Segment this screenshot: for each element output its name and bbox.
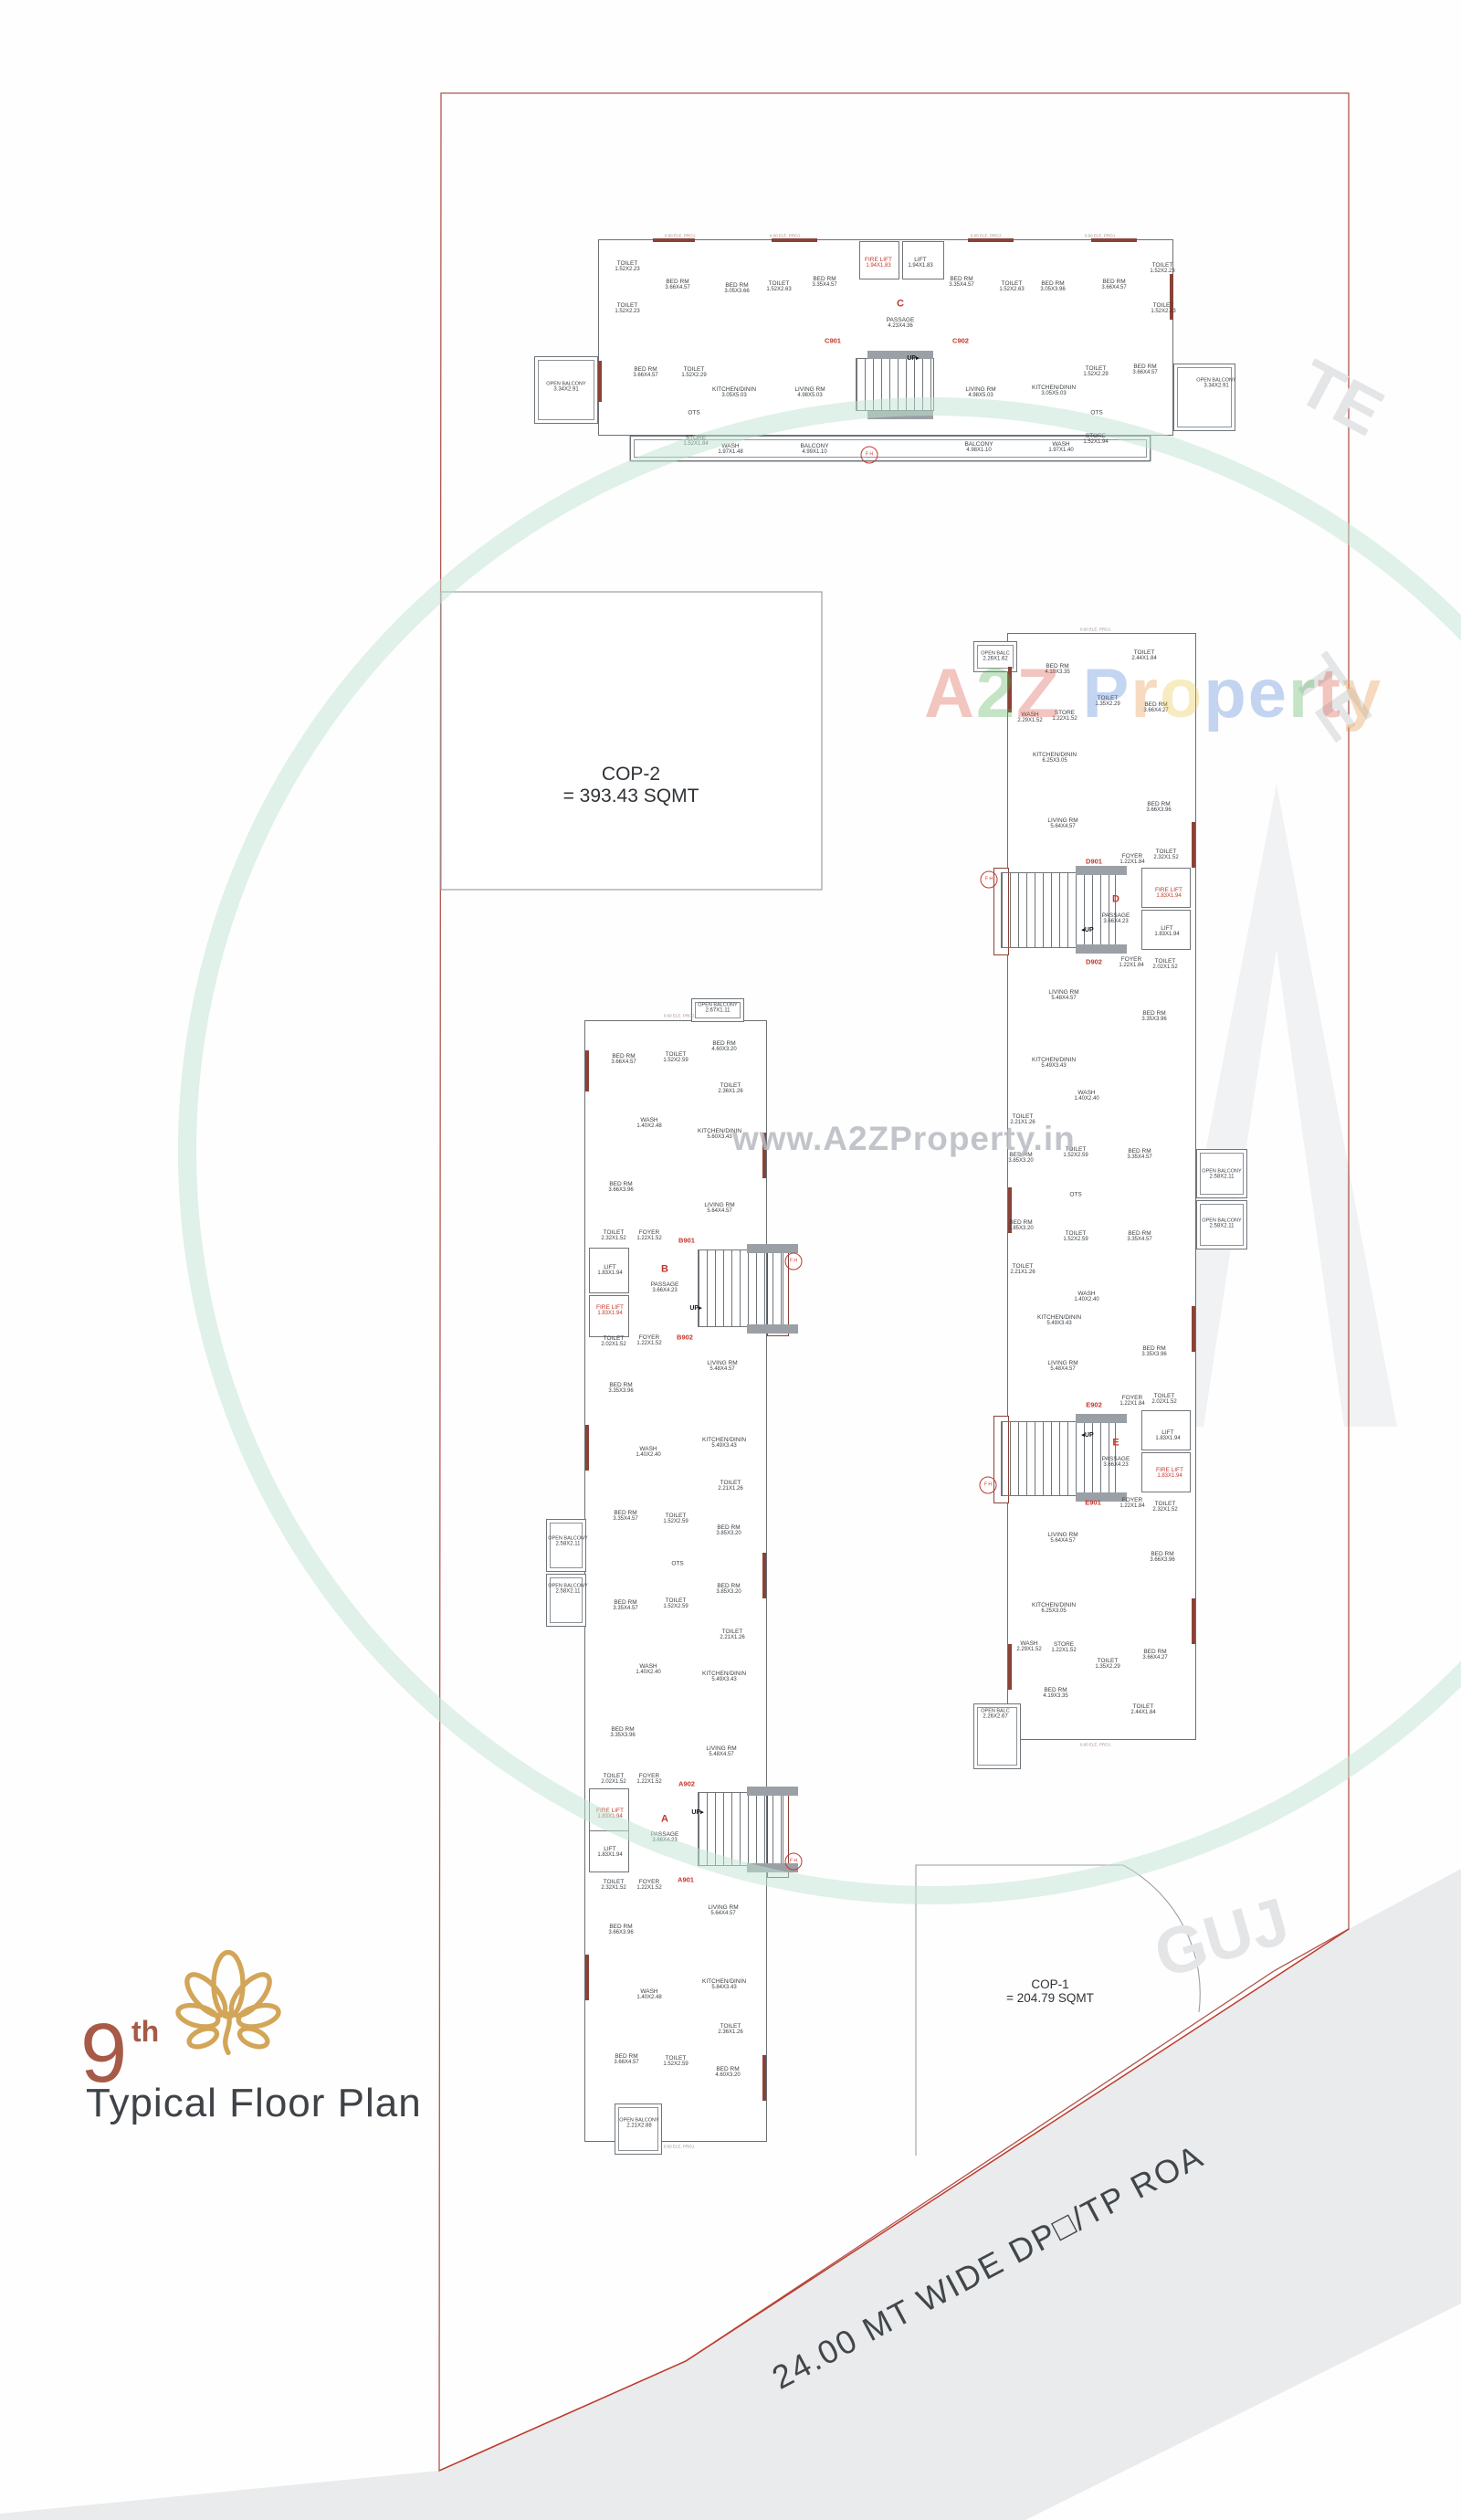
room-label: BED RM4.19X3.35 <box>1043 1687 1067 1700</box>
room-label: BED RM3.66X3.96 <box>1150 1551 1174 1564</box>
room-label: WASH2.29X1.52 <box>1017 712 1042 724</box>
wall-accent <box>1192 1598 1195 1644</box>
room-label: BED RM3.35X4.57 <box>613 1599 637 1612</box>
room-label: WASH1.40X2.40 <box>636 1663 660 1676</box>
room-label: TOILET2.21X1.26 <box>1010 1263 1035 1276</box>
room-label: BED RM4.60X3.20 <box>711 1040 736 1053</box>
room-label: OPEN BALCONY2.58X2.11 <box>548 1535 587 1547</box>
room-label: BED RM3.85X3.20 <box>1008 1152 1033 1165</box>
room-label: BED RM3.66X3.96 <box>1146 801 1171 814</box>
room-label: FOYER1.22X1.52 <box>636 1879 661 1892</box>
room-label: TOILET2.02X1.52 <box>1151 1393 1176 1406</box>
unit-label: C901 <box>825 338 841 346</box>
room-label: OPEN BALC2.26X2.67 <box>981 1708 1009 1720</box>
staircase <box>856 358 934 411</box>
room-label: KITCHEN/DININ6.25X3.05 <box>1033 752 1077 764</box>
room-label: FIRE LIFT1.94X1.83 <box>865 257 892 269</box>
up-arrow-label: ◂UP <box>1081 927 1093 934</box>
room-label: BED RM3.66X4.57 <box>611 1053 636 1066</box>
room-label: TOILET1.52X2.63 <box>766 280 791 293</box>
room-label: KITCHEN/DININ3.05X5.03 <box>1032 385 1076 397</box>
room-label: BED RM3.66X4.57 <box>665 279 689 291</box>
room-label: KITCHEN/DININ6.25X3.05 <box>1032 1602 1076 1615</box>
room-label: BED RM3.35X3.96 <box>610 1726 635 1739</box>
room-label: FOYER1.22X1.84 <box>1119 1395 1144 1408</box>
stair-landing <box>747 1244 798 1253</box>
room-label: BED RM3.35X3.96 <box>1141 1345 1166 1358</box>
room-label: KITCHEN/DININ5.49X3.43 <box>702 1437 746 1450</box>
wall-accent <box>762 2055 766 2101</box>
right-tower-outline <box>1007 633 1196 1740</box>
room-label: KITCHEN/DININ5.84X3.43 <box>702 1978 746 1991</box>
room-label: BED RM3.66X4.27 <box>1143 701 1168 714</box>
room-label: TOILET2.32X1.52 <box>601 1229 625 1242</box>
unit-label: E901 <box>1085 1500 1101 1508</box>
room-label: BED RM3.66X4.57 <box>1132 364 1157 376</box>
unit-label: A901 <box>678 1877 694 1885</box>
core-letter: E <box>1112 1438 1119 1450</box>
room-label: TOILET1.52X2.23 <box>1150 262 1174 275</box>
stair-landing <box>867 351 933 359</box>
room-label: PASSAGE3.66X4.23 <box>1102 912 1130 925</box>
room-label: FOYER1.22X1.84 <box>1119 853 1144 866</box>
room-label: FIRE LIFT1.83X1.94 <box>1156 1467 1183 1480</box>
wall-accent <box>772 238 817 242</box>
room-label: BALCONY4.98X1.10 <box>964 441 993 454</box>
room-label: LIVING RM5.64X4.57 <box>1047 1532 1077 1545</box>
room-label: LIFT1.83X1.94 <box>1154 925 1179 938</box>
room-label: OTS <box>1090 409 1102 416</box>
room-label: KITCHEN/DININ5.60X3.43 <box>698 1128 741 1141</box>
room-label: BED RM3.05X3.96 <box>1040 280 1065 293</box>
room-label: TOILET1.52X2.59 <box>1063 1146 1088 1159</box>
room-label: TOILET2.21X1.26 <box>1010 1113 1035 1126</box>
plan-title: Typical Floor Plan <box>86 2081 422 2126</box>
ele-proj-label: 0.60 ELE. PROJ. <box>1080 627 1111 632</box>
room-label: WASH1.97X1.48 <box>718 443 742 456</box>
room-label: STORE1.22X1.52 <box>1051 1641 1076 1654</box>
balcony <box>1173 364 1235 431</box>
wall-accent <box>585 1050 589 1091</box>
room-label: TOILET2.44X1.84 <box>1131 649 1156 662</box>
room-label: TOILET1.35X2.29 <box>1095 695 1119 708</box>
room-label: LIFT1.83X1.94 <box>597 1264 622 1277</box>
room-label: BED RM3.35X4.57 <box>812 276 836 289</box>
room-label: FOYER1.22X1.84 <box>1119 1497 1144 1510</box>
cop1-name: COP-1 <box>1006 1977 1094 1991</box>
stair-landing <box>747 1787 798 1796</box>
room-label: LIVING RM5.48X4.57 <box>706 1745 736 1758</box>
room-label: BED RM3.66X4.27 <box>1142 1649 1167 1661</box>
room-label: BED RM3.85X3.20 <box>716 1524 741 1537</box>
stair-landing <box>1076 1414 1127 1423</box>
room-label: BED RM3.66X4.57 <box>614 2053 638 2066</box>
wall-accent <box>1008 667 1012 712</box>
wall-accent <box>1008 1644 1012 1690</box>
cop2-area: = 393.43 SQMT <box>563 786 699 807</box>
unit-label: B902 <box>677 1334 693 1343</box>
room-label: LIVING RM5.64X4.57 <box>704 1202 734 1215</box>
stair-landing <box>1076 866 1127 875</box>
room-label: PASSAGE3.66X4.23 <box>651 1281 679 1294</box>
room-label: FOYER1.22X1.52 <box>636 1773 661 1786</box>
up-arrow-label: UP▸ <box>907 355 919 363</box>
room-label: FOYER1.22X1.52 <box>636 1229 661 1242</box>
room-label: FOYER1.22X1.84 <box>1119 956 1143 969</box>
unit-label: A902 <box>678 1781 695 1789</box>
room-label: OPEN BALCONY3.34X2.91 <box>546 381 585 393</box>
core-letter: C <box>897 299 904 311</box>
wall-accent <box>598 361 602 402</box>
room-label: TOILET2.32X1.52 <box>1153 849 1178 861</box>
up-arrow-label: UP▸ <box>691 1809 703 1817</box>
unit-label: B901 <box>678 1238 695 1246</box>
room-label: BED RM3.66X4.57 <box>1101 279 1126 291</box>
room-label: OTS <box>1069 1191 1081 1197</box>
wall-accent <box>968 238 1014 242</box>
room-label: TOILET1.52X2.23 <box>1151 302 1175 315</box>
room-label: BED RM3.66X3.96 <box>608 1181 633 1194</box>
fire-hydrant-badge: F H <box>981 871 998 889</box>
room-label: WASH1.40X2.40 <box>1074 1090 1098 1102</box>
room-label: KITCHEN/DININ5.49X3.43 <box>1032 1057 1076 1070</box>
room-label: BED RM3.66X4.57 <box>633 366 657 379</box>
ele-proj-label: 0.60 ELE. PROJ. <box>664 2145 695 2149</box>
title-block: 9 th Typical Floor Plan <box>64 1936 447 2146</box>
room-label: BED RM3.35X3.96 <box>1141 1010 1166 1023</box>
room-label: STORE1.52X1.84 <box>683 435 708 448</box>
room-label: TOILET1.52X2.23 <box>615 302 639 315</box>
room-label: BED RM3.35X4.57 <box>949 276 973 289</box>
staircase <box>698 1249 783 1327</box>
room-label: FIRE LIFT1.83X1.94 <box>596 1808 624 1820</box>
staircase <box>1001 1421 1116 1496</box>
room-label: LIVING RM5.64X4.57 <box>1047 817 1077 830</box>
room-label: LIFT1.94X1.83 <box>908 257 932 269</box>
room-label: STORE1.52X1.94 <box>1083 433 1108 446</box>
wall-accent <box>762 1133 766 1178</box>
room-label: LIFT1.83X1.94 <box>1155 1429 1180 1442</box>
stair-landing <box>1076 944 1127 954</box>
room-label: KITCHEN/DININ5.49X3.43 <box>1037 1314 1081 1327</box>
room-label: TOILET2.21X1.26 <box>718 1480 742 1492</box>
staircase <box>1001 872 1116 948</box>
cop2-parcel <box>441 592 822 890</box>
room-label: OPEN BALCONY3.34X2.91 <box>1196 377 1235 389</box>
ele-proj-label: 0.60 ELE. PROJ. <box>971 234 1002 238</box>
up-arrow-label: ◂UP <box>1081 1432 1093 1439</box>
room-label: KITCHEN/DININ5.49X3.43 <box>702 1671 746 1683</box>
fire-hydrant-badge: F H <box>785 1253 803 1271</box>
core-letter: D <box>1112 894 1119 906</box>
room-label: LIFT1.83X1.94 <box>597 1846 622 1859</box>
room-label: TOILET2.32X1.52 <box>601 1879 625 1892</box>
room-label: OPEN BALCONY2.58X2.11 <box>1202 1218 1241 1229</box>
floor-plan-canvas: COP-2 = 393.43 SQMT COP-1 = 204.79 SQMT … <box>0 0 1461 2520</box>
room-label: TOILET2.36X1.26 <box>718 1082 742 1095</box>
room-label: OPEN BALC2.26X1.62 <box>981 650 1009 662</box>
room-label: BED RM3.35X4.57 <box>1127 1148 1151 1161</box>
room-label: TOILET1.52X2.59 <box>1063 1230 1088 1243</box>
room-label: TOILET2.02X1.52 <box>601 1773 625 1786</box>
room-label: TOILET1.52X2.59 <box>663 1051 688 1064</box>
wall-accent <box>1192 1306 1195 1352</box>
room-label: LIVING RM5.48X4.57 <box>707 1360 737 1373</box>
cop2-label: COP-2 = 393.43 SQMT <box>563 764 699 807</box>
room-label: FOYER1.22X1.52 <box>636 1334 661 1347</box>
room-label: OPEN BALCONY2.21X2.88 <box>619 2117 658 2129</box>
room-label: WASH2.29X1.52 <box>1016 1640 1041 1653</box>
room-label: BED RM3.85X3.20 <box>716 1583 741 1596</box>
room-label: TOILET1.52X2.59 <box>663 2055 688 2068</box>
room-label: TOILET1.52X2.29 <box>1083 365 1108 378</box>
room-label: OPEN BALCONY2.58X2.11 <box>1202 1168 1241 1180</box>
room-label: TOILET2.21X1.26 <box>720 1629 744 1641</box>
room-label: TOILET1.52X2.63 <box>999 280 1024 293</box>
up-arrow-label: UP▸ <box>689 1305 701 1313</box>
room-label: LIVING RM4.98X5.03 <box>965 386 995 399</box>
ele-proj-label: 0.60 ELE. PROJ. <box>1085 234 1116 238</box>
fire-hydrant-badge: F H <box>980 1477 997 1494</box>
cop1-area: = 204.79 SQMT <box>1006 1991 1094 2005</box>
wall-accent <box>585 1955 589 2000</box>
room-label: TOILET1.52X2.29 <box>681 366 706 379</box>
room-label: WASH1.40X2.40 <box>636 1446 660 1459</box>
ele-proj-label: 0.60 ELE. PROJ. <box>1080 1743 1111 1747</box>
room-label: PASSAGE3.66X4.23 <box>1102 1456 1130 1469</box>
room-label: OTS <box>688 409 699 416</box>
wall-accent <box>762 1553 766 1598</box>
core-letter: B <box>661 1264 668 1276</box>
room-label: OPEN BALCONY2.67X1.11 <box>698 1002 737 1014</box>
room-label: LIVING RM4.98X5.03 <box>794 386 825 399</box>
wall-accent <box>585 1425 589 1471</box>
stair-landing <box>867 411 933 419</box>
room-label: STORE1.22X1.52 <box>1052 710 1077 722</box>
lotus-logo-icon <box>155 1944 301 2090</box>
room-label: OTS <box>671 1560 683 1566</box>
room-label: TOILET2.02X1.52 <box>601 1335 625 1348</box>
balcony <box>546 1574 586 1627</box>
cop2-name: COP-2 <box>563 764 699 786</box>
room-label: BED RM3.35X4.57 <box>613 1510 637 1523</box>
stair-landing <box>747 1324 798 1334</box>
room-label: BED RM3.85X3.20 <box>1008 1219 1033 1232</box>
room-label: WASH1.40X2.40 <box>1074 1291 1098 1303</box>
room-label: BED RM4.19X3.35 <box>1045 663 1069 676</box>
room-label: BALCONY4.99X1.10 <box>800 443 828 456</box>
unit-label: D901 <box>1086 859 1102 867</box>
room-label: WASH1.40X2.48 <box>636 1988 661 2001</box>
room-label: TOILET1.52X2.59 <box>663 1513 688 1525</box>
room-label: PASSAGE4.23X4.36 <box>887 317 915 330</box>
wall-accent <box>653 238 695 242</box>
room-label: BED RM3.05X3.66 <box>724 282 749 295</box>
cop1-label: COP-1 = 204.79 SQMT <box>1006 1977 1094 2005</box>
room-label: LIVING RM5.64X4.57 <box>708 1904 738 1917</box>
room-label: WASH1.97X1.40 <box>1048 441 1073 454</box>
room-label: TOILET1.52X2.59 <box>663 1597 688 1610</box>
room-label: OPEN BALCONY2.58X2.11 <box>548 1583 587 1595</box>
fire-hydrant-badge: F H <box>861 447 878 464</box>
room-label: TOILET1.52X2.23 <box>615 260 639 273</box>
ele-proj-label: 0.60 ELE. PROJ. <box>665 234 696 238</box>
room-label: FIRE LIFT1.83X1.94 <box>596 1304 624 1317</box>
room-label: KITCHEN/DININ3.05X5.03 <box>712 386 756 399</box>
room-label: FIRE LIFT1.83X1.94 <box>1155 887 1182 900</box>
room-label: BED RM3.35X4.57 <box>1127 1230 1151 1243</box>
room-label: TOILET2.44X1.84 <box>1130 1703 1155 1716</box>
ele-proj-label: 0.60 ELE. PROJ. <box>770 234 801 238</box>
ele-proj-label: 0.60 ELE. PROJ. <box>664 1014 695 1018</box>
room-label: PASSAGE3.66X4.23 <box>651 1831 679 1844</box>
room-label: WASH1.40X2.48 <box>636 1117 661 1130</box>
room-label: TOILET2.32X1.52 <box>1152 1501 1177 1513</box>
staircase <box>698 1792 783 1866</box>
room-label: BED RM3.66X3.96 <box>608 1924 633 1936</box>
room-label: BED RM4.60X3.20 <box>715 2066 740 2079</box>
core-letter: A <box>661 1814 668 1826</box>
room-label: LIVING RM5.48X4.57 <box>1048 989 1078 1002</box>
room-label: TOILET2.36X1.26 <box>718 2023 742 2036</box>
unit-label: C902 <box>952 338 969 346</box>
fire-hydrant-badge: F H <box>785 1853 803 1871</box>
room-label: BED RM3.35X3.96 <box>608 1382 633 1395</box>
wall-accent <box>1091 238 1137 242</box>
room-label: TOILET1.35X2.29 <box>1095 1658 1119 1671</box>
unit-label: E902 <box>1086 1402 1102 1410</box>
wall-accent <box>1192 822 1195 868</box>
room-label: LIVING RM5.48X4.57 <box>1047 1360 1077 1373</box>
room-label: TOILET2.02X1.52 <box>1152 958 1177 971</box>
unit-label: D902 <box>1086 959 1102 967</box>
